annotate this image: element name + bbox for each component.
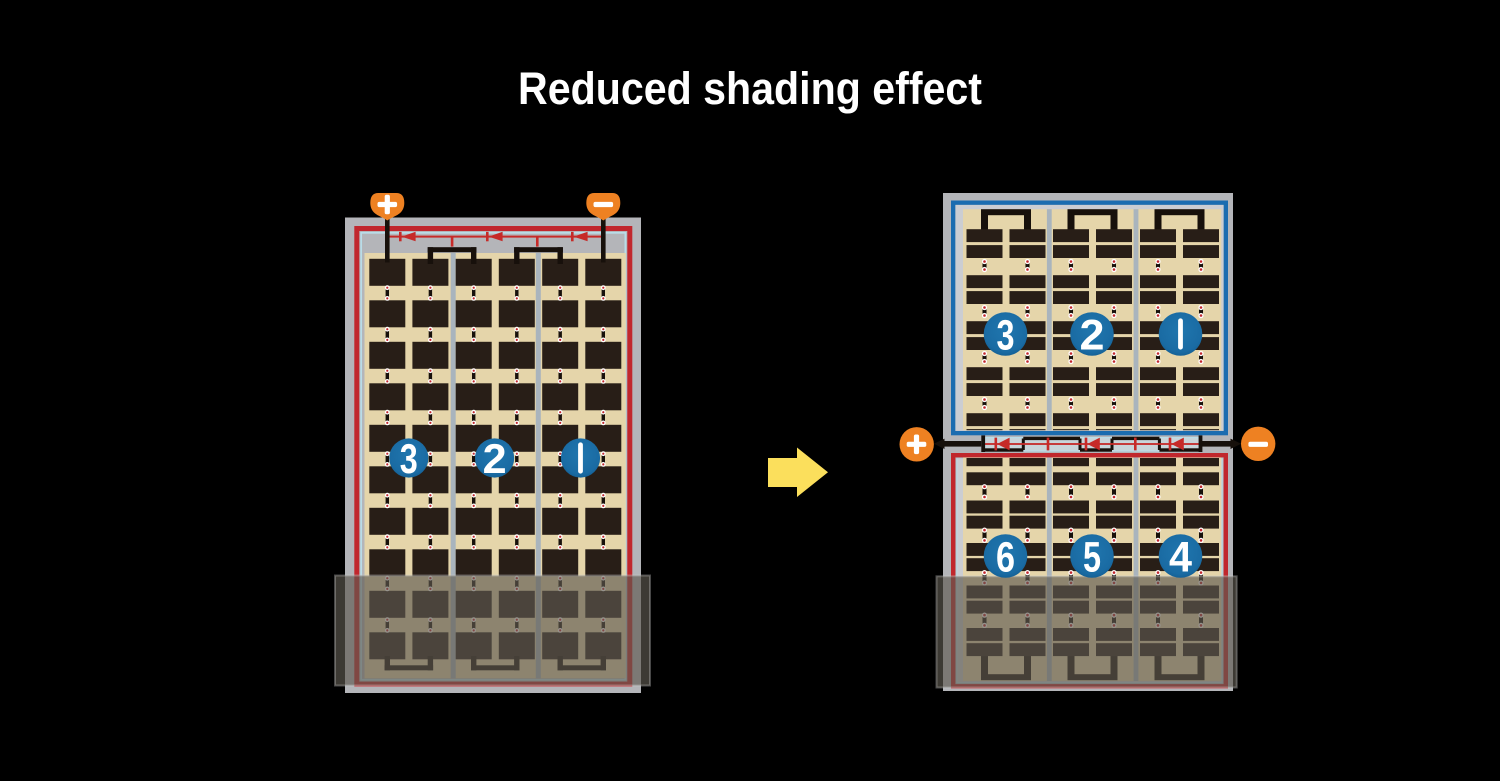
svg-text:2: 2 bbox=[1080, 311, 1105, 359]
svg-text:6: 6 bbox=[996, 533, 1015, 581]
svg-text:2: 2 bbox=[483, 435, 507, 482]
svg-text:Reduced shading effect: Reduced shading effect bbox=[518, 63, 982, 114]
svg-text:4: 4 bbox=[1169, 533, 1192, 581]
svg-text:3: 3 bbox=[997, 311, 1015, 359]
svg-text:5: 5 bbox=[1083, 533, 1101, 581]
svg-text:3: 3 bbox=[400, 435, 418, 482]
